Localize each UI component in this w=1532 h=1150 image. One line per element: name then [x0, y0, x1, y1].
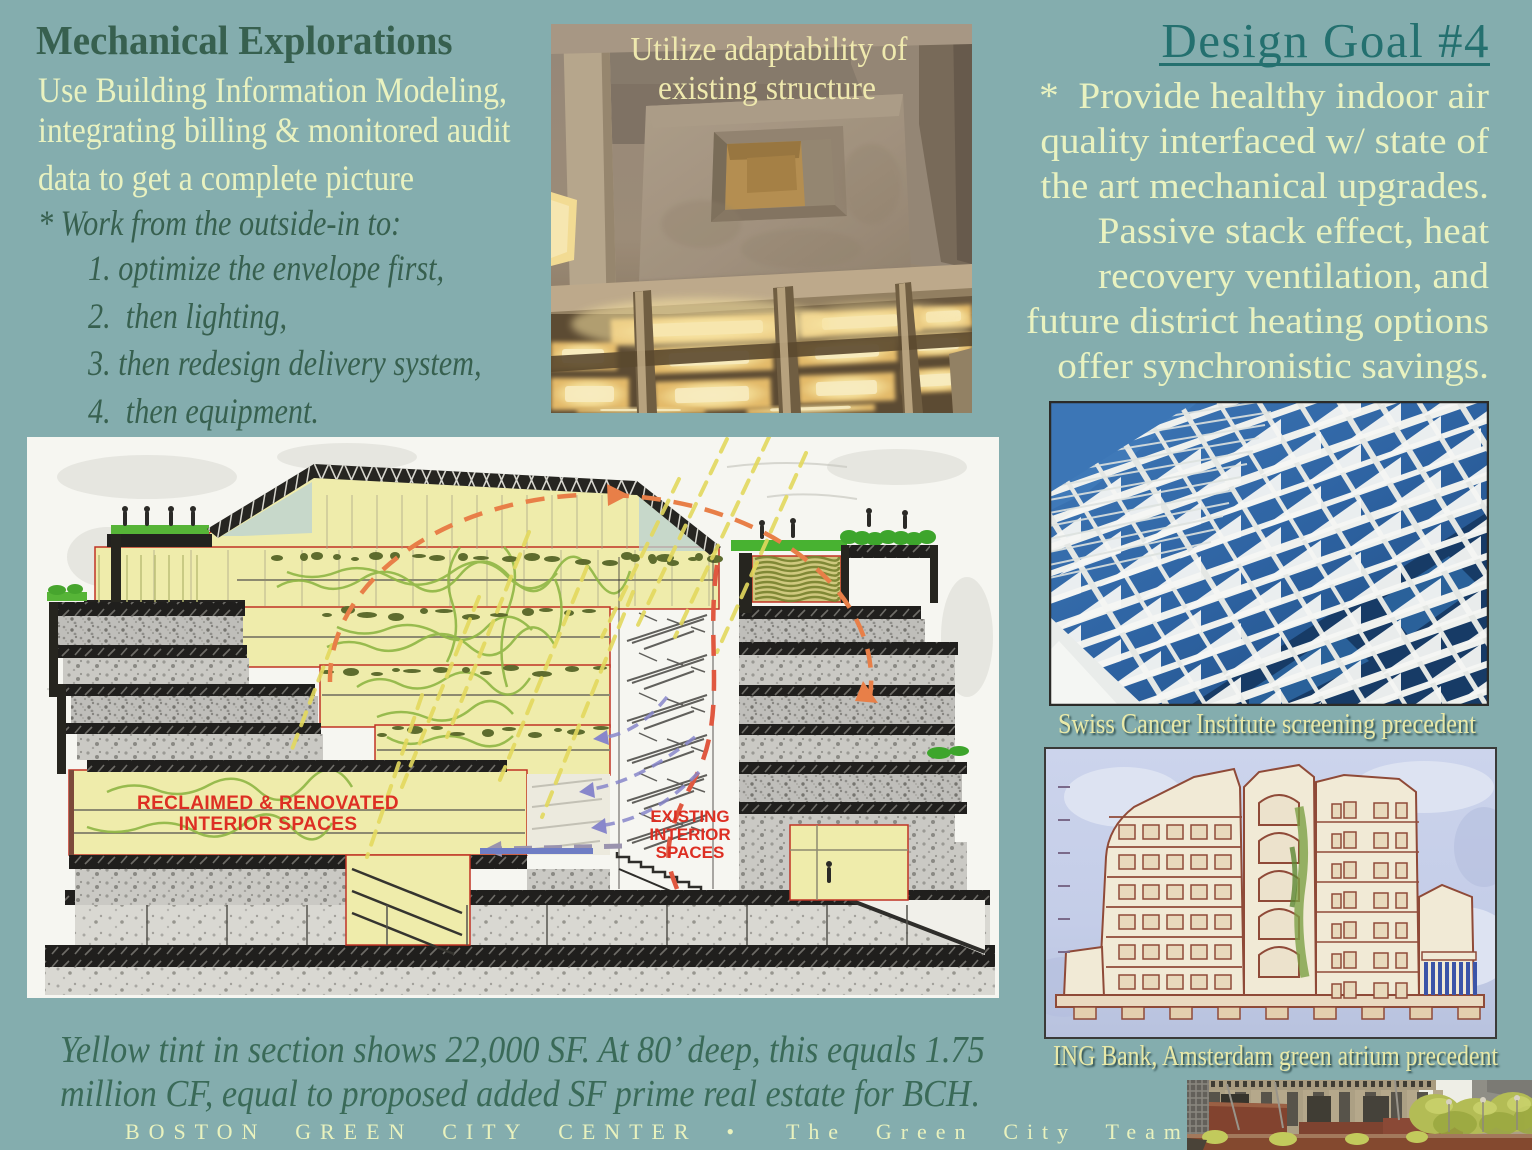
svg-text:SPACES: SPACES: [656, 843, 725, 862]
svg-text:existing structure: existing structure: [658, 70, 876, 107]
svg-text:INTERIOR SPACES: INTERIOR SPACES: [179, 814, 358, 835]
svg-text:EXISTING: EXISTING: [650, 807, 729, 826]
svg-text:INTERIOR: INTERIOR: [649, 825, 730, 844]
svg-text:Utilize adaptability of: Utilize adaptability of: [631, 31, 909, 68]
svg-text:RECLAIMED & RENOVATED: RECLAIMED & RENOVATED: [137, 793, 399, 814]
